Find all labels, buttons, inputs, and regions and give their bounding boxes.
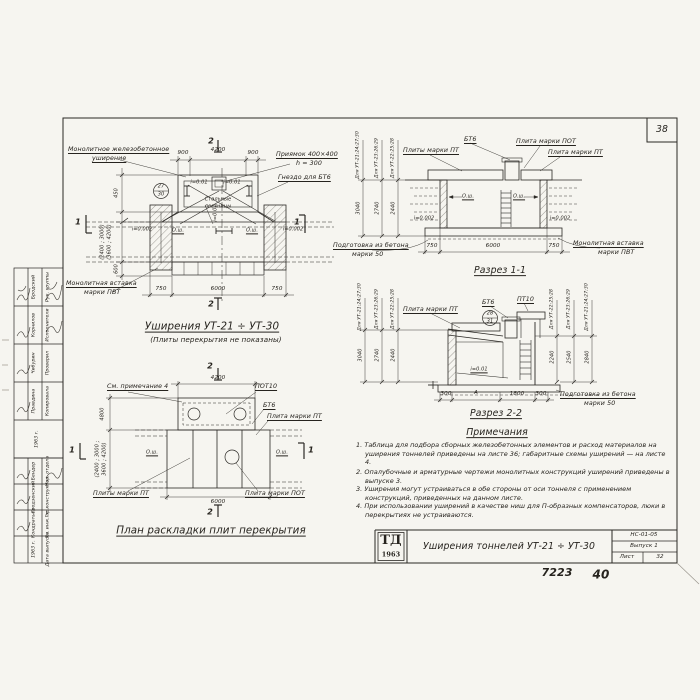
plan-dim-left-4: 600 — [114, 264, 119, 274]
sheet-label: Лист — [620, 555, 635, 561]
p2-dim-top: 4200 — [211, 376, 226, 382]
notes-title: Примечания — [466, 428, 528, 438]
plan-dim-bottom-2: 6000 — [211, 287, 226, 293]
s2-height-left-value-3: 2440 — [391, 348, 396, 361]
plan-dim-bottom-3: 750 — [272, 287, 283, 293]
plan-dim-left-1: 450 — [114, 188, 119, 198]
margin-t2-name-4: 1963 г. — [33, 540, 38, 558]
plan-dim-left-3: (3600 ; 4200) — [107, 224, 112, 260]
plan-subtitle: (Плиты перекрытия не показаны) — [150, 336, 281, 344]
plan-callout-insert-2: марки ПВТ — [84, 290, 120, 297]
p2-dim-left-3: 3600 ; 4200) — [102, 442, 107, 475]
plan-callout-pit-2: h = 300 — [296, 161, 322, 168]
s1-callout-insert: Монолитная вставка — [573, 241, 644, 248]
margin-t2-name-3: Кондратьев — [33, 508, 38, 538]
p2-label-pot10: ПОТ10 — [255, 384, 277, 391]
plan-slope-label-2: i=0.01 — [223, 180, 240, 185]
margin-tables — [14, 268, 63, 563]
s2-height-right-value-2: 2540 — [567, 350, 572, 363]
p2-dim-left-1: 4800 — [100, 407, 105, 420]
plan-slope-label-center: i=0.01 — [213, 204, 218, 221]
plan-section-mark-1-right: 1 — [294, 218, 300, 227]
plan-dim-bottom-1: 750 — [156, 287, 167, 293]
s1-height-label-2: Для УТ-23;26;29 — [376, 138, 381, 178]
p2-section-mark-2-bottom: 2 — [207, 508, 213, 517]
s2-height-left-value-2: 2740 — [375, 348, 380, 361]
ladder-2 — [520, 340, 531, 380]
s2-dim-bottom-2: А — [474, 391, 478, 397]
s2-height-left-label-3: Для УТ-22;25;28 — [392, 289, 397, 329]
doc-code: НС-01-05 — [630, 533, 657, 539]
plan-ladders-label: Стальные — [205, 197, 232, 202]
s2-height-left-value-1: 3040 — [358, 348, 363, 361]
s1-dim-bottom — [418, 228, 570, 254]
p2-axis-label-right: О.ш. — [276, 450, 288, 455]
plan-dim-left-2: (2400 ; 3000) — [100, 224, 105, 260]
plan-detail-mark-bottom: 30 — [158, 192, 165, 197]
p2-dim-left-2: (2400 ; 3000 ; — [95, 441, 100, 478]
plan-callout-insert: Монолитная вставка — [66, 281, 137, 288]
drawing-sheet: Монолитное железобетонное уширение Приям… — [0, 0, 700, 700]
note-item-3: 3. Уширения могут устраиваться в обе сто… — [356, 485, 671, 502]
plan-dim-top-3: 900 — [248, 151, 259, 157]
plan-callout-socket: Гнездо для БТ6 — [278, 175, 331, 182]
s1-title: Разрез 1-1 — [474, 266, 526, 276]
signature-scribbles — [17, 282, 62, 531]
p2-section-mark-1-right: 1 — [308, 446, 314, 455]
s2-callout-pt: Плита марки ПТ — [403, 307, 458, 314]
note-item-2: 2. Опалубочные и арматурные чертежи моно… — [356, 468, 671, 485]
s1-height-label-3: Для УТ-22;25;28 — [392, 138, 397, 178]
drawing-linework — [0, 0, 700, 700]
plan-axis-label-right: О.ш. — [246, 228, 258, 233]
title-block-title: Уширения тоннелей УТ-21 ÷ УТ-30 — [423, 542, 595, 552]
plan-dim-top-1: 900 — [178, 151, 189, 157]
s2-callout-base: Подготовка из бетона — [560, 392, 636, 399]
s2-height-right-label-1: Для УТ-22;25;28 — [551, 289, 556, 329]
s1-dim-bottom-1: 750 — [427, 244, 438, 250]
margin-t1-name-4: Правдина — [33, 389, 38, 414]
s2-title: Разрез 2-2 — [470, 409, 522, 419]
s2-height-right-value-3: 2840 — [585, 350, 590, 363]
margin-t1-date: 1963 г. — [36, 430, 41, 448]
s1-callout-pt-left: Плиты марки ПТ — [403, 148, 459, 155]
plan-callout-widening: Монолитное железобетонное — [68, 147, 169, 154]
margin-t1-role-3: Проверил — [47, 351, 52, 375]
plan-section-mark-1-left: 1 — [75, 218, 81, 227]
p2-label-pt-plural: Плиты марки ПТ — [93, 491, 149, 498]
ladder — [501, 190, 511, 227]
s1-callout-pt-right: Плита марки ПТ — [548, 150, 603, 157]
s1-height-value-2: 2740 — [375, 201, 380, 214]
s1-dim-bottom-3: 750 — [549, 244, 560, 250]
s2-callout-base-2: марки 50 — [584, 401, 615, 408]
margin-t2-name-1: Бендер — [33, 462, 38, 481]
p2-dim-bottom: 6000 — [211, 500, 226, 506]
p2-section-mark-2-top: 2 — [207, 362, 213, 371]
plan-section-mark-2-bottom: 2 — [208, 300, 214, 309]
s1-height-dims — [358, 140, 440, 238]
p2-axis-label-left: О.ш. — [146, 450, 158, 455]
s1-callout-bt6: БТ6 — [464, 137, 476, 144]
stamp-year: 1963 — [382, 552, 401, 559]
margin-t2-role-4: Дата выпуска — [47, 532, 52, 567]
s2-callout-bt6: БТ6 — [482, 300, 494, 307]
page-number: 40 — [593, 569, 610, 582]
plan-slope-label-left: i=0.002 — [132, 227, 153, 232]
p2-label-bt6: БТ6 — [263, 403, 275, 410]
margin-t1-name-1: Бродский — [33, 275, 38, 299]
s2-dim-bottom-3: 1800 — [510, 392, 525, 398]
plan-title: Уширения УТ-21 ÷ УТ-30 — [145, 322, 279, 333]
p2-title: План раскладки плит перекрытия — [116, 526, 306, 537]
p2-label-pt: Плита марки ПТ — [267, 414, 322, 421]
s1-slope-right: i=0.002 — [550, 216, 571, 221]
s1-dim-bottom-2: 6000 — [486, 244, 501, 250]
plan-callout-pit: Приямок 400×400 — [276, 152, 338, 159]
s1-leaders — [372, 143, 600, 250]
margin-t1-name-3: Чибурин — [33, 352, 38, 373]
note-item-4: 4. При использовании уширений в качестве… — [356, 502, 671, 519]
s2-detail-mark-top: 28 — [487, 311, 494, 316]
s2-height-left-label-2: Для УТ-23;26;29 — [376, 289, 381, 329]
s2-slope-label: i=0.01 — [470, 367, 487, 372]
plan-section-mark-2-top: 2 — [208, 137, 214, 146]
plan-axis-label-left: О.ш. — [172, 228, 184, 233]
s2-callout-pt10: ПТ10 — [517, 297, 534, 304]
s2-height-left-label-1: Для УТ-21;24;27;30 — [359, 283, 364, 331]
sheet-number: 32 — [656, 555, 663, 561]
s1-callout-base-2: марки 50 — [352, 252, 383, 259]
p2-label-pot: Плита марки ПОТ — [245, 491, 305, 498]
corner-number: 38 — [656, 125, 668, 135]
s1-height-label-1: Для УТ-21;24;27;30 — [357, 131, 362, 179]
margin-t1-role-4: Копировала — [47, 386, 52, 416]
s2-height-right-label-3: Для УТ-21;24;27;30 — [586, 283, 591, 331]
s2-height-right-value-1: 2240 — [550, 350, 555, 363]
margin-t1-role-1: Рук. группы — [47, 272, 52, 302]
s1-height-value-3: 2440 — [391, 201, 396, 214]
issue-label: Выпуск 1 — [630, 544, 658, 550]
plan-dim-bottom — [142, 270, 294, 297]
plan-slope-label-1: i=0.01 — [190, 180, 207, 185]
plan-callout-widening-2: уширение — [92, 156, 126, 163]
p2-section-mark-1-left: 1 — [69, 446, 75, 455]
s2-detail-mark-bottom: 31 — [487, 319, 494, 324]
archive-number: 7223 — [541, 567, 572, 579]
margin-t1-role-2: Исполнители — [47, 308, 52, 341]
s1-axis-label-right: О.ш. — [513, 194, 525, 199]
s1-height-value-1: 3040 — [356, 201, 361, 214]
s2-dim-bottom-1: 300 — [441, 392, 452, 398]
s1-callout-base: Подготовка из бетона — [333, 243, 409, 250]
s2-dim-bottom-4: 300 — [536, 392, 547, 398]
s1-callout-insert-2: марки ПВТ — [598, 250, 634, 257]
plan-dim-top — [170, 156, 266, 176]
plan-dim-top-2: 4200 — [211, 148, 226, 154]
plan-slope-label-right: i=0.002 — [283, 227, 304, 232]
stamp-logo: ТД — [380, 534, 401, 548]
s1-slope-left: i=0.002 — [414, 216, 435, 221]
plan-detail-mark-top: 27 — [158, 184, 165, 189]
p2-note-ref: См. примечание 4 — [107, 384, 168, 391]
s1-axis-label-left: О.ш. — [462, 194, 474, 199]
note-item-1: 1. Таблица для подбора сборных железобет… — [356, 441, 671, 467]
margin-t1-name-2: Корнилов — [33, 313, 38, 337]
s2-height-right-label-2: Для УТ-23;26;29 — [568, 289, 573, 329]
s1-callout-pot: Плита марки ПОТ — [516, 139, 576, 146]
